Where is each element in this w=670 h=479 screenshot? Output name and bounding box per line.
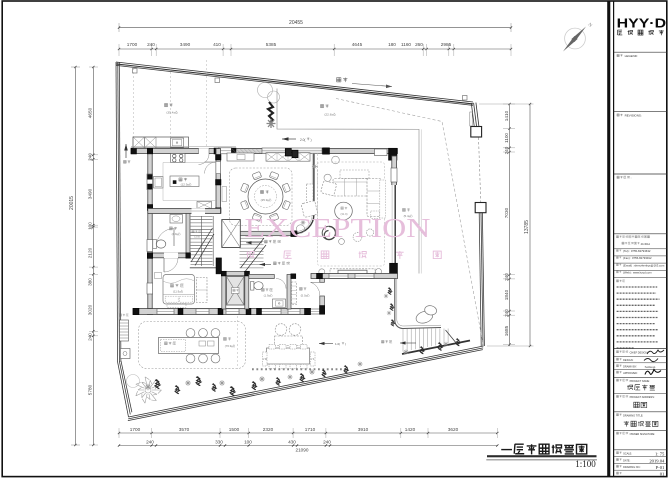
svg-text:1100: 1100 — [504, 133, 509, 143]
svg-text:240: 240 — [88, 153, 93, 161]
svg-text:240: 240 — [504, 273, 509, 281]
svg-text:1160: 1160 — [401, 42, 411, 47]
svg-text:CHIEF DESIGN:: CHIEF DESIGN: — [630, 352, 649, 355]
svg-text:(12.9㎡): (12.9㎡) — [181, 181, 192, 186]
svg-text:3490: 3490 — [180, 42, 191, 47]
svg-text:2320: 2320 — [263, 427, 274, 432]
svg-text:100: 100 — [244, 440, 252, 445]
svg-text:240: 240 — [88, 333, 93, 341]
svg-text:5385: 5385 — [266, 42, 277, 47]
svg-text:P-01: P-01 — [656, 465, 665, 470]
svg-text:Samson: Samson — [645, 365, 656, 369]
svg-text:3570: 3570 — [179, 427, 190, 432]
svg-text:240: 240 — [323, 440, 331, 445]
svg-text:DRAWING TITLE:: DRAWING TITLE: — [623, 415, 643, 418]
svg-text:(Tel) : 0755-82793632: (Tel) : 0755-82793632 — [623, 249, 651, 253]
svg-text:5780: 5780 — [88, 384, 93, 395]
svg-text:3620: 3620 — [448, 427, 459, 432]
svg-text:240: 240 — [504, 309, 509, 317]
svg-text:HYY·D: HYY·D — [617, 15, 667, 30]
svg-text:4645: 4645 — [352, 42, 363, 47]
svg-text::: : — [631, 176, 632, 180]
svg-text:PROJECT ADDRESS:: PROJECT ADDRESS: — [630, 396, 655, 399]
svg-text:1410: 1410 — [504, 110, 509, 121]
svg-text:LEGEND:: LEGEND: — [625, 54, 638, 58]
svg-text:13785: 13785 — [524, 220, 530, 234]
svg-text:240: 240 — [147, 42, 155, 47]
svg-text:1: 75: 1: 75 — [655, 451, 665, 456]
svg-text:2.0(: 2.0( — [300, 138, 306, 142]
svg-text:DATE:: DATE: — [623, 459, 630, 462]
svg-text:(5.0㎡): (5.0㎡) — [301, 293, 310, 298]
svg-text:1700: 1700 — [127, 42, 138, 47]
svg-text:1700: 1700 — [130, 427, 141, 432]
svg-text:240: 240 — [504, 146, 509, 154]
svg-text:180: 180 — [388, 42, 396, 47]
svg-text:01: 01 — [660, 472, 665, 477]
svg-text:1500: 1500 — [229, 427, 240, 432]
svg-text:PROJECT NAME:: PROJECT NAME: — [630, 380, 651, 383]
svg-text:3020: 3020 — [88, 304, 93, 315]
svg-text:(11.9㎡): (11.9㎡) — [173, 289, 183, 294]
svg-text:100: 100 — [88, 222, 93, 230]
svg-text:3910: 3910 — [358, 427, 369, 432]
svg-text:(22.8㎡): (22.8㎡) — [324, 112, 335, 117]
svg-text:410: 410 — [213, 42, 221, 47]
svg-text:OWNER SIGNATURE:: OWNER SIGNATURE: — [630, 433, 656, 436]
svg-text:(Web) : www.hyyd.com: (Web) : www.hyyd.com — [623, 271, 652, 275]
svg-text:(4.9㎡): (4.9㎡) — [172, 231, 181, 236]
svg-text:330: 330 — [215, 440, 223, 445]
svg-text:430: 430 — [288, 440, 296, 445]
svg-text:2120: 2120 — [88, 247, 93, 258]
svg-text:EXCEPTION: EXCEPTION — [245, 213, 431, 243]
svg-text:REVISIONS:: REVISIONS: — [625, 114, 642, 118]
svg-text:(25.9㎡): (25.9㎡) — [261, 197, 272, 202]
svg-text:40-301A: 40-301A — [641, 243, 651, 246]
svg-text:20455: 20455 — [289, 20, 303, 26]
svg-text:(Email) : shenzhenhyy@163.com: (Email) : shenzhenhyy@163.com — [623, 263, 665, 267]
svg-text:(76.9㎡): (76.9㎡) — [225, 343, 235, 348]
svg-text:4650: 4650 — [88, 107, 93, 118]
svg-text:(3.9): (3.9) — [194, 235, 199, 239]
svg-text:DESIGN:: DESIGN: — [623, 359, 634, 362]
svg-text:21090: 21090 — [295, 448, 308, 453]
svg-text:1685: 1685 — [504, 325, 509, 336]
svg-text:(35.4㎡): (35.4㎡) — [166, 110, 177, 115]
svg-text:(1.9㎡): (1.9㎡) — [264, 293, 273, 298]
svg-text:1840: 1840 — [504, 289, 509, 300]
svg-text:(Fax) : 0755-82793912: (Fax) : 0755-82793912 — [623, 256, 652, 260]
svg-text:1.0(: 1.0( — [335, 342, 340, 346]
svg-text:240: 240 — [146, 440, 154, 445]
svg-text:): ) — [311, 138, 312, 142]
svg-text:DRAWING NO.:: DRAWING NO.: — [623, 466, 641, 469]
svg-text:): ) — [345, 342, 346, 346]
svg-text:260: 260 — [415, 42, 423, 47]
svg-text:20015: 20015 — [69, 196, 75, 210]
svg-text:2985: 2985 — [441, 42, 452, 47]
svg-text:1710: 1710 — [305, 427, 316, 432]
svg-text:7030: 7030 — [504, 207, 509, 218]
svg-text:1:100: 1:100 — [575, 459, 596, 469]
svg-text:1420: 1420 — [405, 427, 416, 432]
svg-text:SCALE:: SCALE: — [623, 453, 632, 456]
svg-text:380: 380 — [88, 278, 93, 286]
svg-text:APPROVED:: APPROVED: — [623, 372, 638, 375]
svg-text:2019.04: 2019.04 — [649, 458, 665, 463]
svg-text:DRAWN BY:: DRAWN BY: — [623, 366, 637, 369]
svg-text:3490: 3490 — [88, 188, 93, 199]
